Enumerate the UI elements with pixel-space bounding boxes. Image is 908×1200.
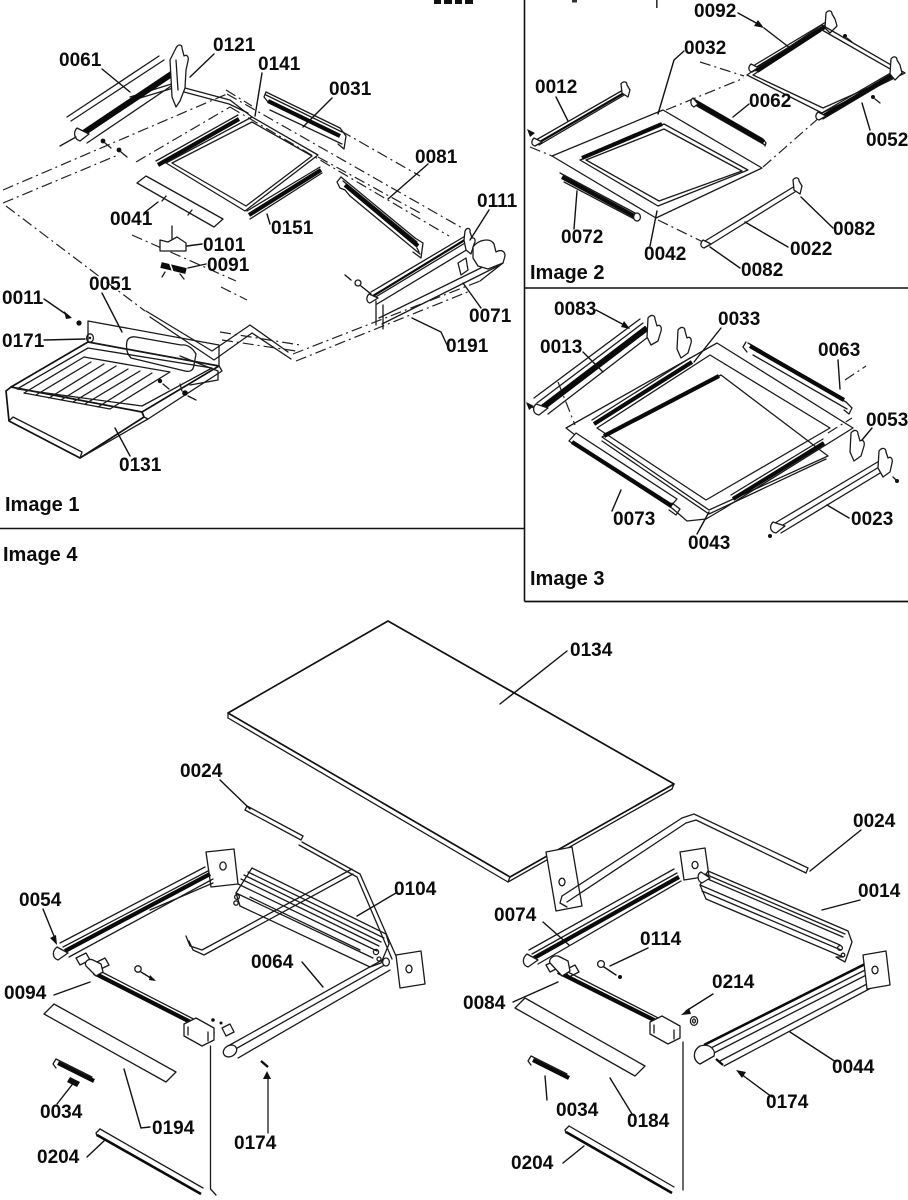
svg-text:0171: 0171 bbox=[2, 331, 45, 352]
svg-text:0094: 0094 bbox=[4, 983, 47, 1004]
svg-text:0191: 0191 bbox=[446, 336, 489, 357]
svg-text:0053: 0053 bbox=[866, 410, 908, 431]
svg-text:0023: 0023 bbox=[851, 509, 893, 530]
svg-text:0014: 0014 bbox=[858, 881, 901, 902]
svg-text:0042: 0042 bbox=[644, 244, 686, 265]
svg-text:0041: 0041 bbox=[110, 209, 153, 230]
svg-text:0024: 0024 bbox=[180, 761, 223, 782]
svg-text:0051: 0051 bbox=[89, 274, 132, 295]
svg-text:0082: 0082 bbox=[833, 219, 875, 240]
svg-text:0011: 0011 bbox=[2, 288, 44, 309]
svg-text:0104: 0104 bbox=[394, 879, 437, 900]
svg-text:0064: 0064 bbox=[251, 952, 294, 973]
svg-text:0012: 0012 bbox=[535, 77, 577, 98]
svg-text:0032: 0032 bbox=[684, 38, 726, 59]
svg-text:0022: 0022 bbox=[790, 239, 832, 260]
svg-text:0204: 0204 bbox=[37, 1147, 80, 1168]
svg-text:0063: 0063 bbox=[818, 340, 860, 361]
svg-text:0101: 0101 bbox=[203, 235, 246, 256]
svg-text:0174: 0174 bbox=[766, 1092, 809, 1113]
svg-text:0074: 0074 bbox=[494, 905, 537, 926]
svg-text:0151: 0151 bbox=[271, 218, 314, 239]
svg-text:0034: 0034 bbox=[556, 1100, 599, 1121]
svg-text:0204: 0204 bbox=[511, 1153, 554, 1174]
svg-text:0054: 0054 bbox=[19, 890, 62, 911]
svg-text:0024: 0024 bbox=[853, 811, 896, 832]
svg-text:0062: 0062 bbox=[749, 91, 791, 112]
svg-text:0174: 0174 bbox=[234, 1133, 277, 1154]
svg-text:0141: 0141 bbox=[258, 54, 301, 75]
svg-text:0083: 0083 bbox=[554, 299, 596, 320]
svg-text:0052: 0052 bbox=[866, 130, 908, 151]
svg-text:0184: 0184 bbox=[627, 1111, 670, 1132]
svg-text:0084: 0084 bbox=[463, 993, 506, 1014]
svg-text:0114: 0114 bbox=[640, 929, 682, 950]
svg-text:0214: 0214 bbox=[712, 972, 755, 993]
svg-text:0131: 0131 bbox=[119, 455, 162, 476]
svg-text:0013: 0013 bbox=[540, 337, 582, 358]
svg-text:0043: 0043 bbox=[688, 533, 730, 554]
svg-text:0194: 0194 bbox=[152, 1118, 195, 1139]
svg-text:0033: 0033 bbox=[718, 309, 760, 330]
svg-text:0134: 0134 bbox=[570, 640, 613, 661]
svg-text:0044: 0044 bbox=[832, 1057, 875, 1078]
svg-text:Image 4: Image 4 bbox=[3, 544, 78, 566]
svg-text:0082: 0082 bbox=[741, 260, 783, 281]
svg-text:Image 1: Image 1 bbox=[5, 494, 79, 516]
svg-text:0071: 0071 bbox=[469, 306, 512, 327]
svg-text:0121: 0121 bbox=[213, 35, 256, 56]
svg-text:0111: 0111 bbox=[477, 191, 518, 212]
svg-text:0091: 0091 bbox=[207, 255, 250, 276]
svg-text:0031: 0031 bbox=[329, 79, 372, 100]
svg-text:0072: 0072 bbox=[561, 227, 603, 248]
svg-text:0081: 0081 bbox=[415, 147, 458, 168]
svg-text:0061: 0061 bbox=[59, 50, 102, 71]
svg-text:0073: 0073 bbox=[613, 509, 655, 530]
svg-text:Image 3: Image 3 bbox=[530, 568, 604, 590]
svg-text:0034: 0034 bbox=[40, 1102, 83, 1123]
svg-text:Image 2: Image 2 bbox=[530, 262, 604, 284]
svg-text:0092: 0092 bbox=[694, 1, 736, 22]
